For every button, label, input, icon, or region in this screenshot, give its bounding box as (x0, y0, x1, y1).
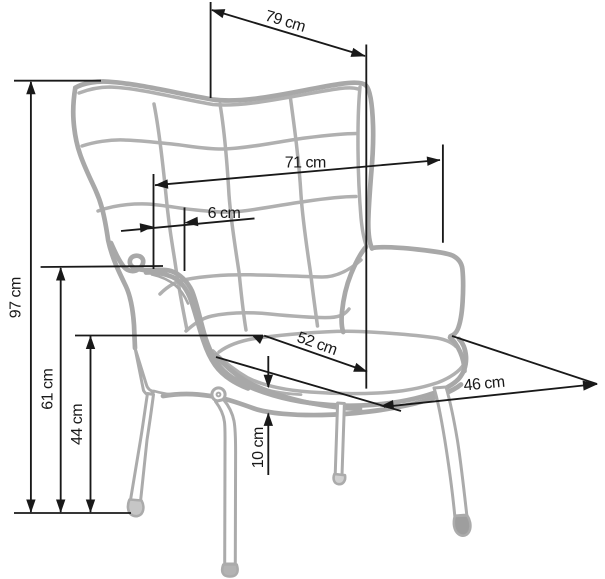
svg-text:61 cm: 61 cm (40, 368, 57, 409)
svg-text:44 cm: 44 cm (69, 404, 86, 445)
svg-text:71 cm: 71 cm (285, 155, 326, 172)
svg-text:10 cm: 10 cm (250, 427, 267, 468)
svg-text:97 cm: 97 cm (8, 277, 25, 318)
svg-text:6 cm: 6 cm (208, 205, 241, 222)
